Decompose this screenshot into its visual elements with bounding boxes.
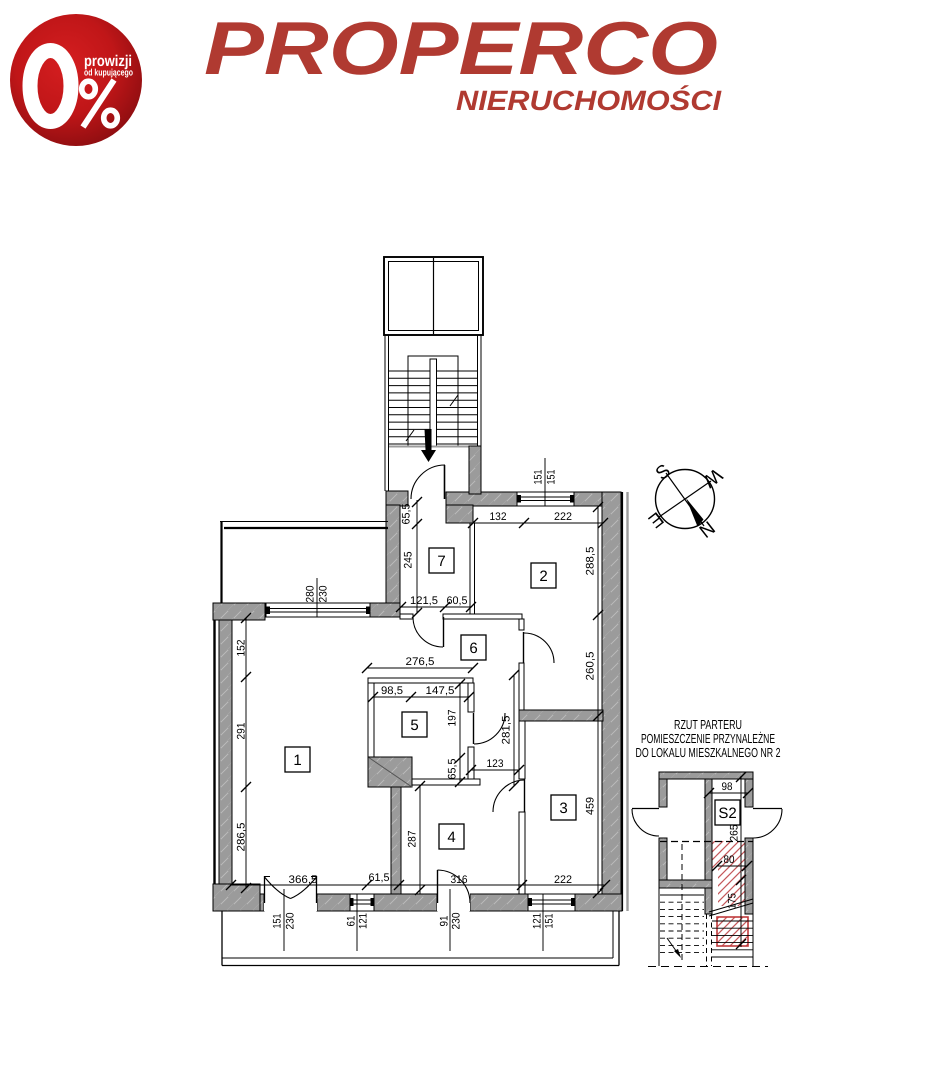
svg-text:S2: S2 bbox=[718, 805, 736, 822]
svg-text:91: 91 bbox=[439, 916, 451, 927]
svg-text:175: 175 bbox=[727, 893, 739, 909]
svg-text:230: 230 bbox=[318, 586, 330, 603]
svg-text:RZUT PARTERU: RZUT PARTERU bbox=[674, 717, 742, 732]
svg-text:280: 280 bbox=[305, 586, 317, 603]
svg-text:65,5: 65,5 bbox=[447, 759, 459, 780]
svg-text:121: 121 bbox=[358, 913, 370, 929]
svg-text:281,5: 281,5 bbox=[501, 716, 513, 745]
svg-text:151: 151 bbox=[272, 914, 284, 929]
svg-text:121,5: 121,5 bbox=[410, 595, 438, 607]
svg-text:265: 265 bbox=[729, 825, 741, 842]
svg-text:98: 98 bbox=[722, 781, 733, 793]
svg-text:132: 132 bbox=[490, 511, 507, 523]
svg-text:366,5: 366,5 bbox=[289, 874, 318, 886]
svg-text:197: 197 bbox=[447, 710, 459, 727]
svg-text:2: 2 bbox=[539, 568, 547, 585]
svg-text:3: 3 bbox=[559, 800, 567, 817]
svg-text:291: 291 bbox=[236, 723, 248, 740]
svg-text:PROPERCO: PROPERCO bbox=[204, 6, 718, 90]
svg-text:4: 4 bbox=[447, 829, 455, 846]
svg-text:276,5: 276,5 bbox=[406, 656, 435, 668]
svg-text:316: 316 bbox=[451, 874, 468, 886]
svg-text:152: 152 bbox=[236, 640, 248, 657]
svg-text:222: 222 bbox=[554, 511, 572, 523]
svg-text:287: 287 bbox=[407, 831, 419, 848]
svg-text:61: 61 bbox=[346, 916, 358, 927]
svg-text:65,5: 65,5 bbox=[401, 504, 413, 525]
svg-text:260,5: 260,5 bbox=[585, 652, 597, 681]
svg-text:7: 7 bbox=[437, 553, 445, 570]
svg-text:230: 230 bbox=[451, 913, 463, 930]
svg-text:od kupującego: od kupującego bbox=[84, 68, 133, 79]
svg-text:459: 459 bbox=[585, 797, 597, 815]
svg-text:60,5: 60,5 bbox=[447, 595, 468, 607]
svg-text:288,5: 288,5 bbox=[585, 547, 597, 576]
svg-text:230: 230 bbox=[285, 913, 297, 930]
svg-text:DO LOKALU MIESZKALNEGO NR 2: DO LOKALU MIESZKALNEGO NR 2 bbox=[636, 745, 781, 760]
svg-text:NIERUCHOMOŚCI: NIERUCHOMOŚCI bbox=[456, 85, 722, 116]
svg-text:61,5: 61,5 bbox=[369, 872, 390, 884]
svg-text:5: 5 bbox=[410, 717, 418, 734]
svg-text:286,5: 286,5 bbox=[236, 823, 248, 852]
svg-text:151: 151 bbox=[544, 914, 556, 929]
svg-text:123: 123 bbox=[487, 758, 504, 770]
svg-text:80: 80 bbox=[724, 854, 735, 866]
svg-text:222: 222 bbox=[554, 874, 572, 886]
svg-text:245: 245 bbox=[403, 552, 415, 569]
svg-text:6: 6 bbox=[469, 640, 477, 657]
svg-text:98,5: 98,5 bbox=[381, 685, 403, 697]
svg-text:151: 151 bbox=[546, 470, 558, 485]
svg-text:POMIESZCZENIE PRZYNALEŻNE: POMIESZCZENIE PRZYNALEŻNE bbox=[641, 731, 775, 746]
svg-text:1: 1 bbox=[293, 752, 301, 769]
svg-text:147,5: 147,5 bbox=[426, 685, 455, 697]
svg-text:121: 121 bbox=[532, 913, 544, 929]
svg-text:151: 151 bbox=[533, 470, 545, 485]
